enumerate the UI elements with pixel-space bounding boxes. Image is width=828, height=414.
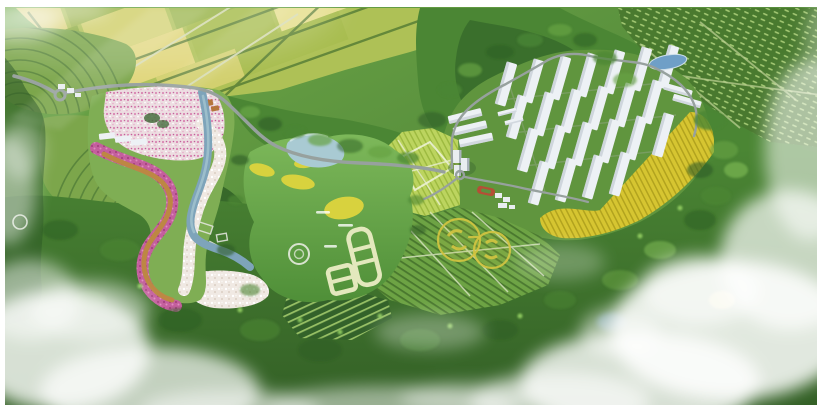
scene: 明 bbox=[0, 0, 828, 414]
aerial-rendering-frame: Aerial master-plan rendering of a hillsi… bbox=[0, 0, 828, 414]
lawn-art-character: 明 bbox=[340, 237, 384, 286]
aerial-masterplan-rendering: Aerial master-plan rendering of a hillsi… bbox=[0, 0, 828, 414]
